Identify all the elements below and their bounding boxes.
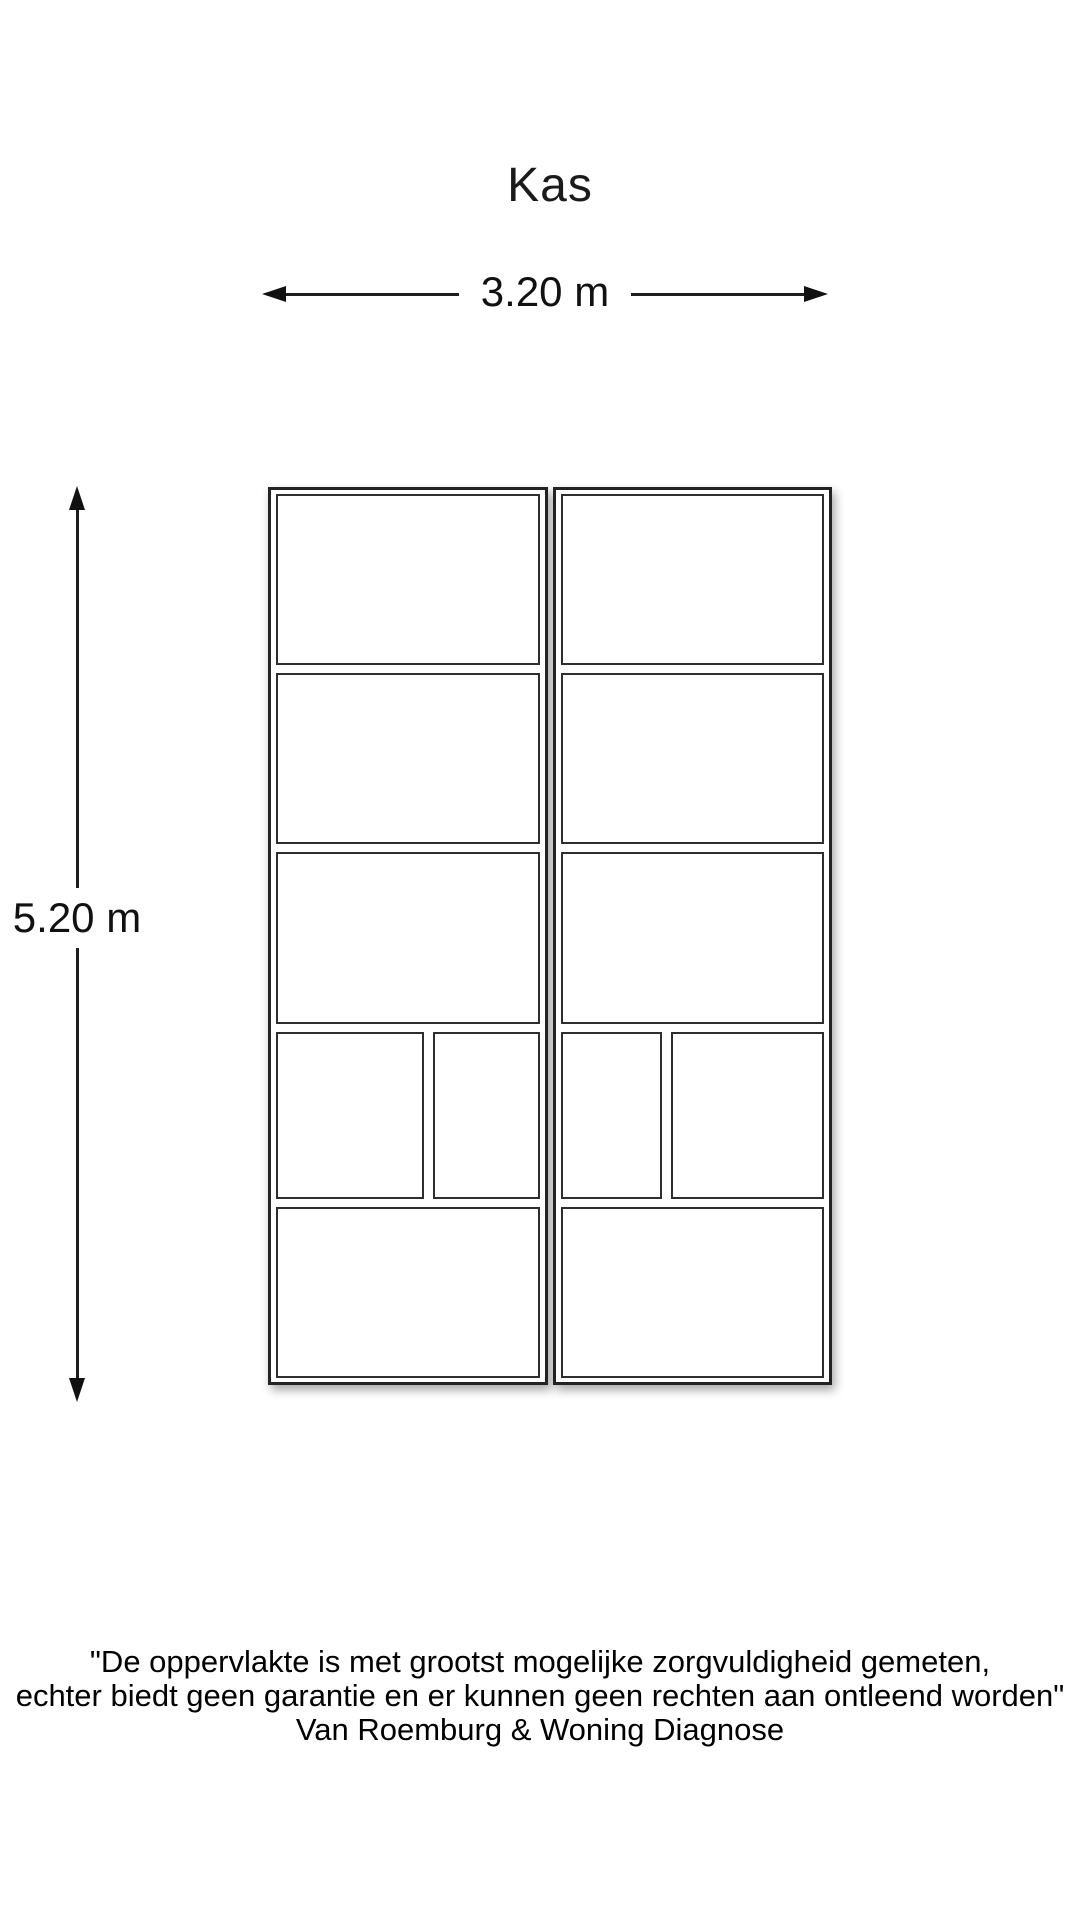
arrow-down-icon [69,1378,85,1402]
plan-cell [561,1032,663,1199]
arrow-left-icon [262,286,286,302]
width-dimension-label: 3.20 m [459,268,631,316]
plan-row [561,1207,825,1378]
arrow-up-icon [69,486,85,510]
arrow-right-icon [804,286,828,302]
width-dimension: 3.20 m [262,271,828,317]
page-title: Kas [268,158,832,213]
plan-row [276,852,540,1023]
plan-row [561,494,825,665]
plan-row [561,852,825,1023]
dimension-line [76,948,79,1378]
plan-cell [671,1032,824,1199]
disclaimer-line: echter biedt geen garantie en er kunnen … [0,1679,1080,1713]
disclaimer-line: "De oppervlakte is met grootst mogelijke… [0,1645,1080,1679]
disclaimer-line: Van Roemburg & Woning Diagnose [0,1713,1080,1747]
plan-row-split [561,1032,825,1199]
dimension-line [631,293,804,296]
plan-cell [433,1032,540,1199]
plan-row [561,673,825,844]
floorplan-page: Kas 3.20 m 5.20 m "De oppervlakte is met… [0,0,1080,1920]
height-dimension-label: 5.20 m [13,888,141,948]
plan-row [276,673,540,844]
plan-row-split [276,1032,540,1199]
greenhouse-panel-right [553,487,833,1385]
plan-cell [276,1032,424,1199]
floorplan-drawing [268,487,832,1385]
height-dimension: 5.20 m [17,486,137,1402]
greenhouse-panel-left [268,487,548,1385]
dimension-line [76,510,79,888]
plan-row [276,494,540,665]
disclaimer: "De oppervlakte is met grootst mogelijke… [0,1645,1080,1747]
dimension-line [286,293,459,296]
plan-row [276,1207,540,1378]
